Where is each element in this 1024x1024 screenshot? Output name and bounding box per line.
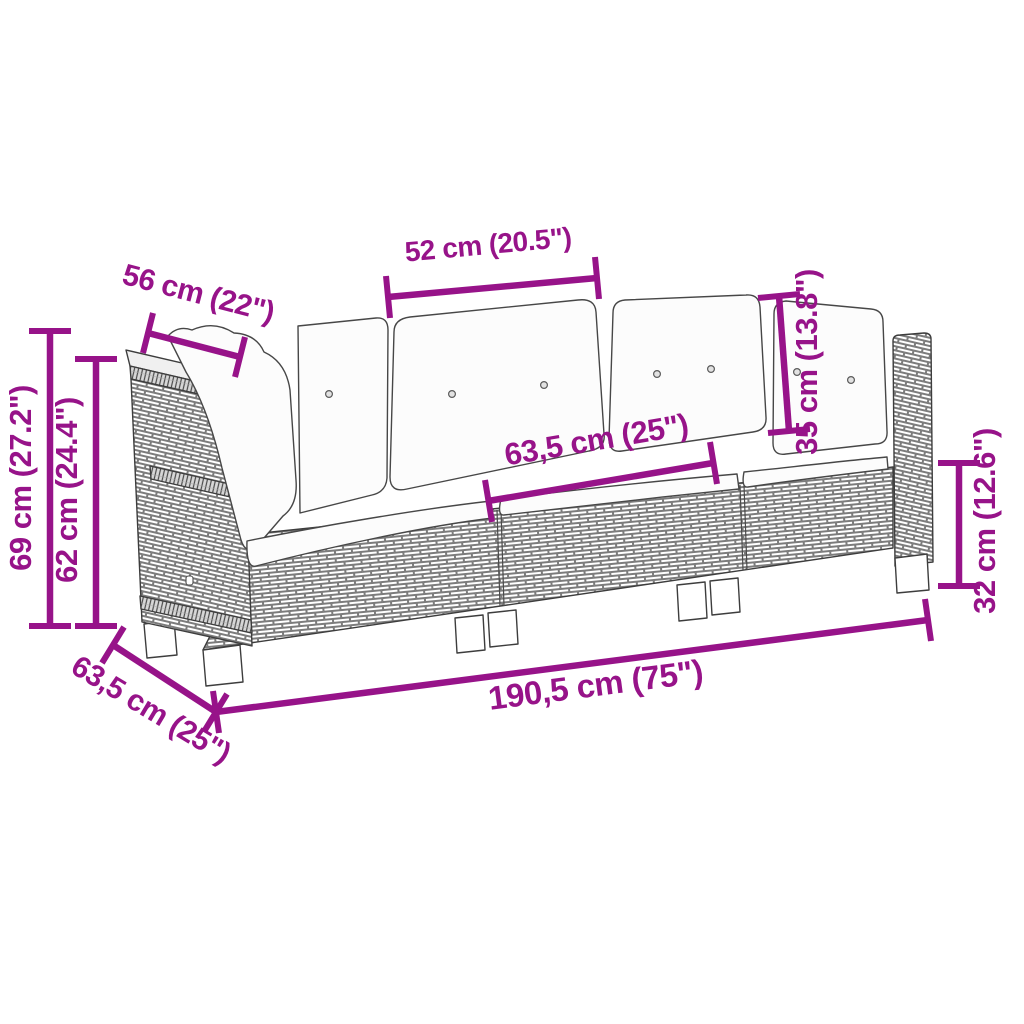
dim-label-seat-height: 32 cm (12.6") [967, 428, 1002, 614]
button [541, 382, 548, 389]
dim-label-armrest-top-length: 56 cm (22") [119, 258, 278, 329]
leg [710, 578, 740, 615]
right-side-panel [893, 333, 933, 566]
back-cushion-left [298, 318, 388, 513]
dimension-armrest-height: 62 cm (24.4") [49, 359, 117, 626]
leg [455, 615, 485, 653]
sofa-diagram-canvas: 52 cm (20.5") 56 cm (22") 35 cm (13.8") … [0, 0, 1024, 1024]
dimension-seat-height: 32 cm (12.6") [938, 428, 1002, 614]
dim-label-overall-height: 69 cm (27.2") [3, 385, 38, 571]
button [848, 377, 855, 384]
button [326, 391, 333, 398]
dimension-back-cushion-height: 35 cm (13.8") [758, 269, 824, 455]
button [708, 366, 715, 373]
product-dimension-diagram: 52 cm (20.5") 56 cm (22") 35 cm (13.8") … [0, 0, 1024, 1024]
button [449, 391, 456, 398]
leg [203, 645, 243, 686]
leg [677, 582, 707, 621]
dim-label-cushion-width: 52 cm (20.5") [404, 222, 573, 268]
armrest-drain-hole [186, 576, 193, 585]
dim-label-armrest-height: 62 cm (24.4") [49, 397, 84, 583]
dim-label-back-cushion-height: 35 cm (13.8") [789, 269, 824, 455]
leg [895, 554, 929, 593]
button [654, 371, 661, 378]
leg [488, 610, 518, 647]
